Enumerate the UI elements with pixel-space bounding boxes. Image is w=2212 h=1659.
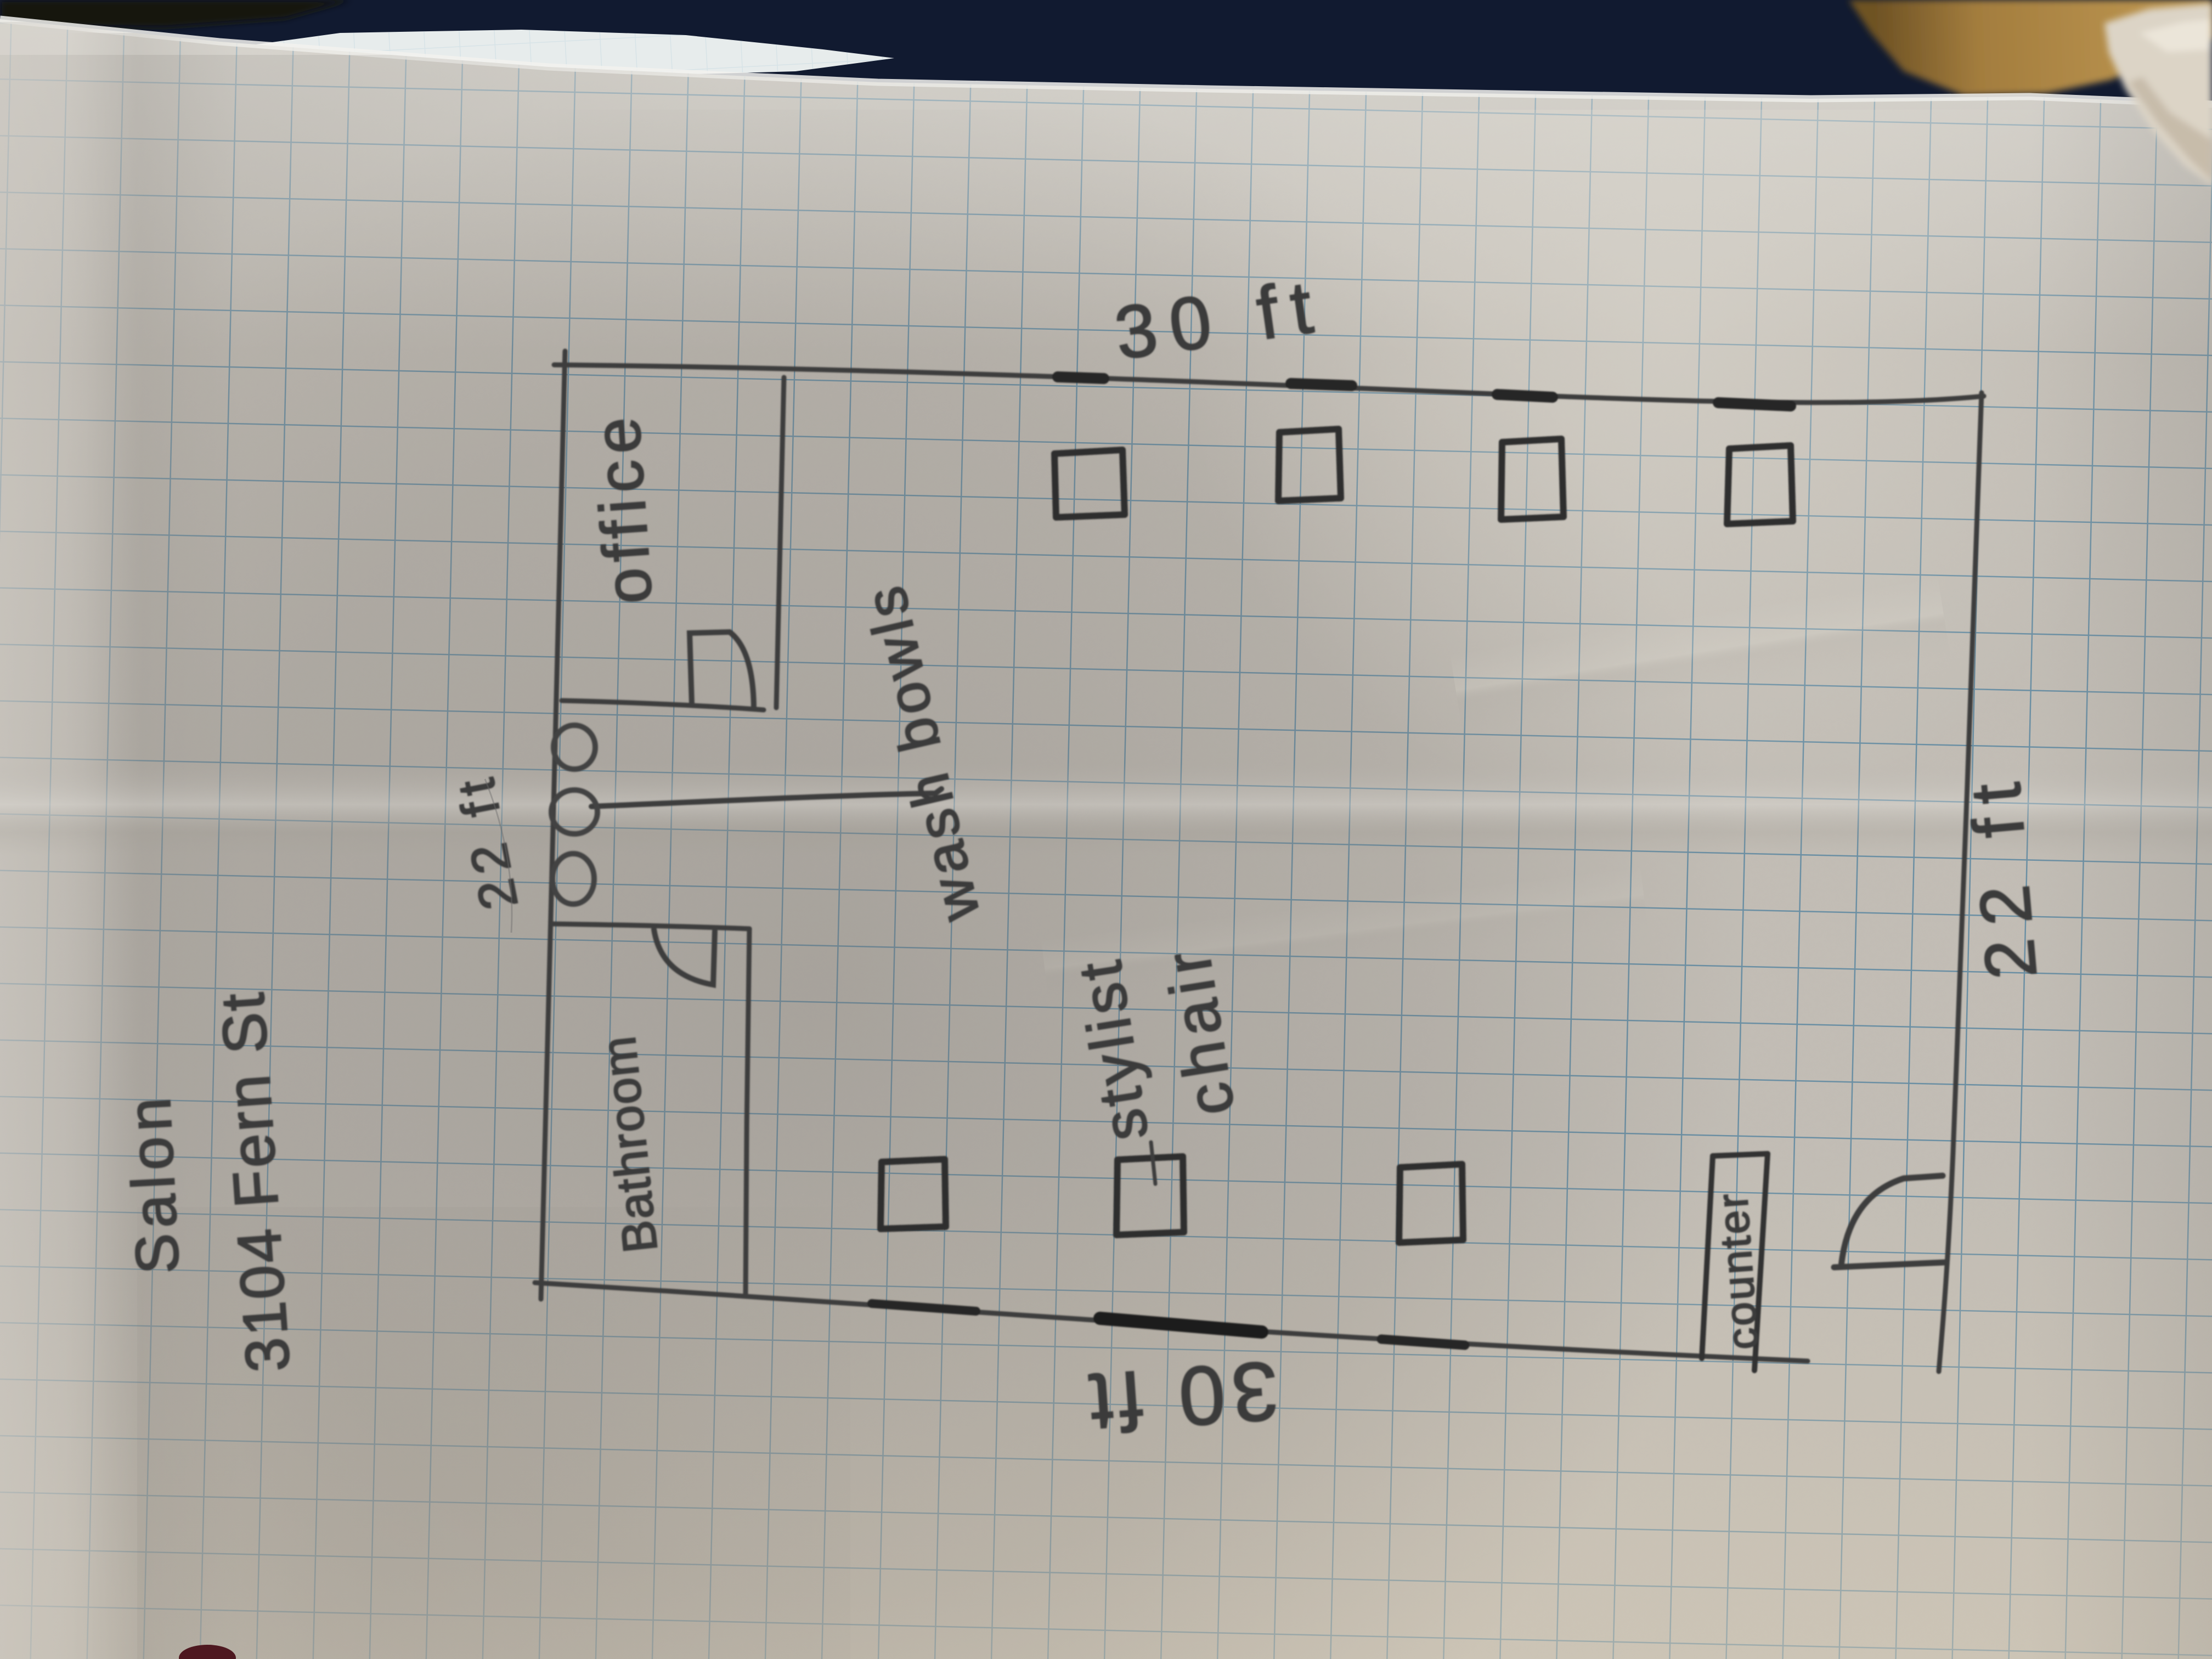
svg-text:30 ft: 30 ft <box>1080 1344 1282 1450</box>
svg-text:Salon: Salon <box>115 1091 192 1276</box>
svg-text:office: office <box>580 409 666 606</box>
